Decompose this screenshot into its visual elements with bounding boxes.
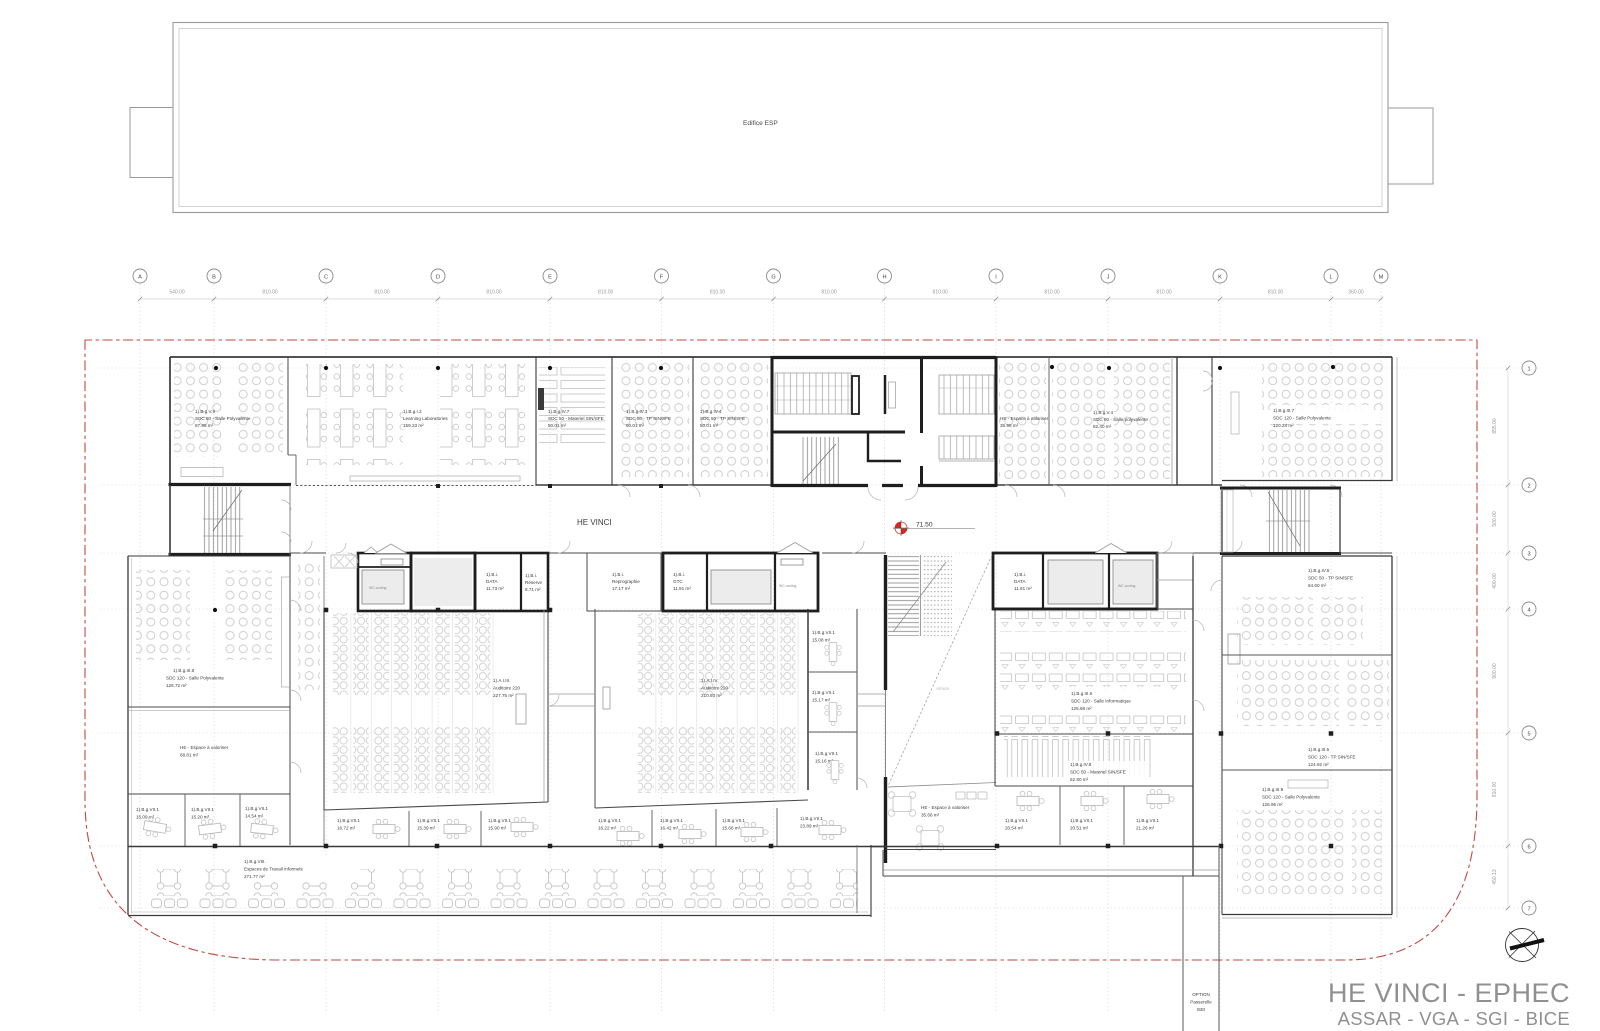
svg-text:1).B.i.: 1).B.i. bbox=[1014, 572, 1026, 577]
svg-text:15.20 m²: 15.20 m² bbox=[191, 815, 210, 820]
svg-text:SDC 120 - Salle Polyvalente: SDC 120 - Salle Polyvalente bbox=[166, 676, 224, 681]
svg-text:Reprographie: Reprographie bbox=[612, 579, 640, 584]
svg-text:126.96 m²: 126.96 m² bbox=[1262, 802, 1283, 807]
svg-text:A: A bbox=[138, 274, 142, 280]
svg-text:1).B.g.VII.1: 1).B.g.VII.1 bbox=[660, 818, 683, 823]
svg-text:J: J bbox=[1107, 274, 1110, 280]
svg-text:HE - Espace à valoriser: HE - Espace à valoriser bbox=[921, 805, 970, 810]
svg-text:227.75 m²: 227.75 m² bbox=[493, 693, 514, 698]
svg-text:1).B.g.V.4: 1).B.g.V.4 bbox=[1093, 410, 1113, 415]
svg-text:GTC: GTC bbox=[673, 579, 683, 584]
svg-text:Réserve: Réserve bbox=[525, 580, 543, 585]
svg-text:Atrium: Atrium bbox=[936, 686, 949, 691]
svg-text:L: L bbox=[1329, 274, 1332, 280]
svg-text:810.00: 810.00 bbox=[262, 290, 278, 296]
svg-text:OPTION: OPTION bbox=[1192, 992, 1210, 997]
svg-text:1).B.g.VII.1: 1).B.g.VII.1 bbox=[1070, 818, 1093, 823]
svg-text:11.91 m²: 11.91 m² bbox=[1014, 586, 1032, 591]
svg-text:3: 3 bbox=[1527, 551, 1530, 557]
svg-text:Edifice ESP: Edifice ESP bbox=[743, 120, 778, 127]
svg-text:124.92 m²: 124.92 m² bbox=[1308, 762, 1329, 767]
svg-text:DATA: DATA bbox=[1014, 579, 1027, 584]
svg-text:810.00: 810.00 bbox=[1156, 290, 1172, 296]
svg-text:WC cooling: WC cooling bbox=[779, 584, 796, 588]
svg-text:52.80 m²: 52.80 m² bbox=[1070, 777, 1089, 782]
svg-text:20.51 m²: 20.51 m² bbox=[1070, 826, 1089, 831]
svg-text:1).B.g.VIII.: 1).B.g.VIII. bbox=[244, 859, 266, 864]
svg-text:1).B.g.IV.4: 1).B.g.IV.4 bbox=[700, 409, 722, 414]
svg-text:50.01 m²: 50.01 m² bbox=[700, 423, 719, 428]
svg-text:1).B.g.VII.1: 1).B.g.VII.1 bbox=[1005, 818, 1028, 823]
svg-text:125.68 m²: 125.68 m² bbox=[1071, 706, 1092, 711]
svg-text:68.81 m²: 68.81 m² bbox=[180, 753, 199, 758]
svg-text:120.24 m²: 120.24 m² bbox=[1273, 423, 1294, 428]
svg-text:1).B.g.VII.1: 1).B.g.VII.1 bbox=[800, 816, 823, 821]
svg-text:810.00: 810.00 bbox=[598, 290, 614, 296]
svg-text:810.00: 810.00 bbox=[374, 290, 390, 296]
svg-text:50.01 m²: 50.01 m² bbox=[626, 423, 645, 428]
svg-text:1).B.g.VII.1: 1).B.g.VII.1 bbox=[812, 690, 835, 695]
svg-text:1).B.g.VII.1: 1).B.g.VII.1 bbox=[417, 818, 440, 823]
svg-text:855.00: 855.00 bbox=[1492, 418, 1498, 434]
svg-text:6.71 m²: 6.71 m² bbox=[525, 587, 541, 592]
svg-text:1).B.g.IV.3: 1).B.g.IV.3 bbox=[626, 409, 648, 414]
svg-text:23.89 m²: 23.89 m² bbox=[800, 824, 819, 829]
svg-text:1).B.g.IV.8: 1).B.g.IV.8 bbox=[1070, 762, 1092, 767]
svg-text:15.17 m²: 15.17 m² bbox=[812, 698, 831, 703]
svg-text:SDC 50 - Materiel SIN/SFE: SDC 50 - Materiel SIN/SFE bbox=[1070, 770, 1126, 775]
svg-text:WC cooling: WC cooling bbox=[369, 586, 386, 590]
svg-text:15.08 m²: 15.08 m² bbox=[812, 638, 831, 643]
svg-text:1).B.g.I.2: 1).B.g.I.2 bbox=[403, 409, 422, 414]
svg-text:82.40 m²: 82.40 m² bbox=[1093, 424, 1112, 429]
svg-text:16.72 m²: 16.72 m² bbox=[337, 826, 356, 831]
svg-text:1).B.g.VII.1: 1).B.g.VII.1 bbox=[722, 818, 745, 823]
svg-text:810.00: 810.00 bbox=[1492, 782, 1498, 798]
svg-text:810.00: 810.00 bbox=[1044, 290, 1060, 296]
svg-text:1).B.i.: 1).B.i. bbox=[525, 573, 537, 578]
svg-text:1).B.g.VII.1: 1).B.g.VII.1 bbox=[191, 807, 214, 812]
svg-text:HE - Espace à valoriser: HE - Espace à valoriser bbox=[1000, 416, 1049, 421]
svg-text:810.00: 810.00 bbox=[1268, 290, 1284, 296]
svg-text:71.50: 71.50 bbox=[916, 522, 933, 529]
svg-text:K: K bbox=[1218, 274, 1222, 280]
svg-text:20.54 m²: 20.54 m² bbox=[1005, 826, 1024, 831]
svg-text:H: H bbox=[882, 274, 886, 280]
svg-text:M: M bbox=[1379, 274, 1384, 280]
svg-text:1).B.g.III.6: 1).B.g.III.6 bbox=[1071, 691, 1093, 696]
svg-text:11.73 m²: 11.73 m² bbox=[486, 586, 504, 591]
svg-text:1).B.g.VII.1: 1).B.g.VII.1 bbox=[136, 807, 159, 812]
svg-text:450.13: 450.13 bbox=[1492, 869, 1498, 885]
svg-text:2: 2 bbox=[1527, 483, 1530, 489]
svg-text:1).B.g.III.9: 1).B.g.III.9 bbox=[1262, 787, 1284, 792]
svg-text:11.91 m²: 11.91 m² bbox=[673, 586, 691, 591]
svg-text:B: B bbox=[212, 274, 216, 280]
svg-text:900.00: 900.00 bbox=[1492, 663, 1498, 679]
svg-text:HE VINCI: HE VINCI bbox=[577, 518, 612, 527]
svg-text:21.26 m²: 21.26 m² bbox=[1136, 826, 1155, 831]
svg-text:500.00: 500.00 bbox=[1492, 511, 1498, 527]
svg-text:5: 5 bbox=[1527, 731, 1530, 737]
svg-text:G: G bbox=[771, 274, 775, 280]
svg-text:1).B.g.III.7: 1).B.g.III.7 bbox=[1273, 408, 1295, 413]
svg-text:F: F bbox=[660, 274, 664, 280]
svg-text:810.00: 810.00 bbox=[933, 290, 949, 296]
svg-text:1).B.g.IV.7: 1).B.g.IV.7 bbox=[548, 409, 570, 414]
svg-text:16.22 m²: 16.22 m² bbox=[598, 826, 617, 831]
svg-text:17.17 m²: 17.17 m² bbox=[612, 586, 631, 591]
svg-text:35.98 m²: 35.98 m² bbox=[1000, 423, 1019, 428]
svg-text:ISEI: ISEI bbox=[1197, 1007, 1206, 1012]
svg-text:1: 1 bbox=[1527, 366, 1530, 372]
svg-text:35.66 m²: 35.66 m² bbox=[921, 813, 940, 818]
svg-text:Learning Laboratories: Learning Laboratories bbox=[403, 416, 448, 421]
svg-text:15.90 m²: 15.90 m² bbox=[488, 826, 507, 831]
svg-text:SDC 50 - TP SIN/SFE: SDC 50 - TP SIN/SFE bbox=[1308, 576, 1353, 581]
svg-text:810.00: 810.00 bbox=[710, 290, 726, 296]
svg-text:16.42 m²: 16.42 m² bbox=[660, 826, 679, 831]
svg-text:1).A.I.IV.: 1).A.I.IV. bbox=[701, 678, 719, 683]
svg-text:HE - Espace à valoriser: HE - Espace à valoriser bbox=[180, 745, 229, 750]
svg-text:SDC 80 - Salle Polyvalente: SDC 80 - Salle Polyvalente bbox=[195, 416, 251, 421]
svg-text:SDC 120 - TP SIN/SFE: SDC 120 - TP SIN/SFE bbox=[1308, 755, 1356, 760]
svg-text:1).B.g.III.8: 1).B.g.III.8 bbox=[173, 668, 195, 673]
svg-text:Passerelle: Passerelle bbox=[1190, 1000, 1212, 1005]
svg-text:SDC 120 - Salle Informatique: SDC 120 - Salle Informatique bbox=[1071, 699, 1131, 704]
svg-text:Auditoire 220: Auditoire 220 bbox=[493, 686, 521, 691]
svg-text:SDC 50 - TP SIN/SFE: SDC 50 - TP SIN/SFE bbox=[700, 416, 745, 421]
svg-text:1).B.g.VII.1: 1).B.g.VII.1 bbox=[488, 818, 511, 823]
svg-text:15.16 m²: 15.16 m² bbox=[815, 759, 834, 764]
svg-text:1).B.g.VII.1: 1).B.g.VII.1 bbox=[1136, 818, 1159, 823]
svg-text:SDC 80 - Salle polyvalente: SDC 80 - Salle polyvalente bbox=[1093, 417, 1148, 422]
svg-text:360.00: 360.00 bbox=[1348, 290, 1364, 296]
svg-text:SDC 120 - Salle Polyvalente: SDC 120 - Salle Polyvalente bbox=[1262, 795, 1320, 800]
svg-text:WC cooling: WC cooling bbox=[1118, 584, 1135, 588]
svg-text:1).B.g.IV.5: 1).B.g.IV.5 bbox=[1308, 568, 1330, 573]
svg-text:87.98 m²: 87.98 m² bbox=[195, 423, 214, 428]
svg-text:400.00: 400.00 bbox=[1492, 573, 1498, 589]
svg-text:1).B.g.VII.1: 1).B.g.VII.1 bbox=[337, 818, 360, 823]
svg-text:HE VINCI - EPHEC: HE VINCI - EPHEC bbox=[1328, 978, 1570, 1008]
svg-text:E: E bbox=[548, 274, 552, 280]
svg-text:50.01 m²: 50.01 m² bbox=[548, 423, 567, 428]
svg-text:15.68 m²: 15.68 m² bbox=[722, 826, 741, 831]
svg-text:64.60 m²: 64.60 m² bbox=[1308, 583, 1327, 588]
svg-text:ASSAR - VGA - SGI - BICE: ASSAR - VGA - SGI - BICE bbox=[1338, 1008, 1570, 1029]
svg-text:4: 4 bbox=[1527, 607, 1530, 613]
svg-text:7: 7 bbox=[1527, 906, 1530, 912]
svg-text:540.00: 540.00 bbox=[169, 290, 185, 296]
svg-text:DATA: DATA bbox=[486, 579, 499, 584]
svg-text:1).B.i.: 1).B.i. bbox=[612, 572, 624, 577]
svg-text:1).A.I.III.: 1).A.I.III. bbox=[493, 678, 510, 683]
svg-text:810.00: 810.00 bbox=[821, 290, 837, 296]
svg-text:Auditoire 220: Auditoire 220 bbox=[701, 686, 729, 691]
svg-text:210.93 m²: 210.93 m² bbox=[701, 693, 722, 698]
svg-text:1).B.g.III.5: 1).B.g.III.5 bbox=[1308, 747, 1330, 752]
svg-text:SDC 50 - TP SIN/SFE: SDC 50 - TP SIN/SFE bbox=[626, 416, 671, 421]
svg-text:6: 6 bbox=[1527, 844, 1530, 850]
svg-text:1).B.g.VII.1: 1).B.g.VII.1 bbox=[812, 630, 835, 635]
svg-text:SDC 120 - Salle Polyvalente: SDC 120 - Salle Polyvalente bbox=[1273, 416, 1331, 421]
svg-text:159.23 m²: 159.23 m² bbox=[403, 423, 424, 428]
svg-text:1).B.g.VII.1: 1).B.g.VII.1 bbox=[815, 751, 838, 756]
svg-text:15.39 m²: 15.39 m² bbox=[417, 826, 436, 831]
svg-text:SDC 50 - Materiel SIN/SFE: SDC 50 - Materiel SIN/SFE bbox=[548, 416, 604, 421]
svg-text:1).B.i.: 1).B.i. bbox=[486, 572, 498, 577]
svg-text:810.00: 810.00 bbox=[486, 290, 502, 296]
svg-text:271.77 m²: 271.77 m² bbox=[244, 874, 265, 879]
svg-text:1).B.g.VII.1: 1).B.g.VII.1 bbox=[598, 818, 621, 823]
svg-text:14.54 m²: 14.54 m² bbox=[245, 814, 264, 819]
svg-text:126.72 m²: 126.72 m² bbox=[166, 683, 187, 688]
svg-text:1).B.i.: 1).B.i. bbox=[673, 572, 685, 577]
svg-text:D: D bbox=[436, 274, 440, 280]
svg-text:1).B.g.V.9: 1).B.g.V.9 bbox=[195, 409, 215, 414]
svg-text:Espaces de Travail informels: Espaces de Travail informels bbox=[244, 867, 303, 872]
svg-text:1).B.g.VII.1: 1).B.g.VII.1 bbox=[245, 806, 268, 811]
svg-text:C: C bbox=[324, 274, 328, 280]
